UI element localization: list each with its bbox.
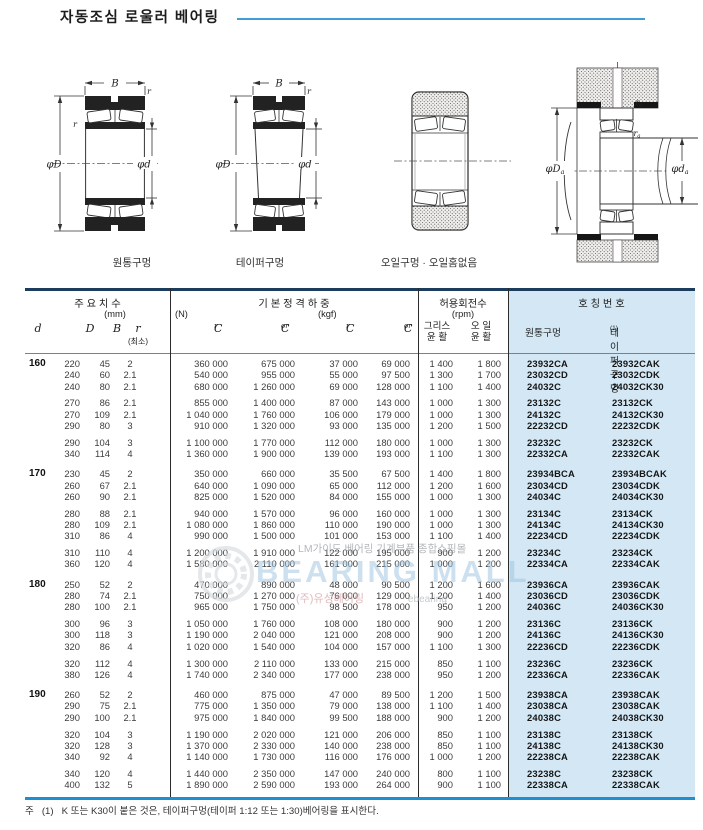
spacer: [150, 491, 170, 502]
cell-r: 2: [110, 358, 150, 369]
cell-cylindrical-number: 23236C: [508, 658, 611, 669]
cell-grease: 1 200: [418, 480, 453, 491]
cell-r: 3: [110, 618, 150, 629]
cell-D: 340: [55, 448, 80, 459]
cell-cr-n: 990 000: [170, 530, 228, 541]
cell-taper-number: 24134CK30: [611, 519, 695, 530]
cell-grease: 1 200: [418, 590, 453, 601]
divider: [170, 288, 171, 797]
cell-cylindrical-number: 22334CA: [508, 558, 611, 569]
cell-cr-n: 350 000: [170, 468, 228, 479]
cell-B: 120: [80, 768, 110, 779]
cell-taper-number: 22236CDK: [611, 641, 695, 652]
cell-cor-n: 1 760 000: [228, 409, 295, 420]
cell-cor-kgf: 97 500: [358, 369, 410, 380]
cell-cr-n: 1 050 000: [170, 618, 228, 629]
cell-cor-kgf: 208 000: [358, 629, 410, 640]
cell-D: 320: [55, 729, 80, 740]
cell-cor-kgf: 138 000: [358, 700, 410, 711]
spacer: [410, 700, 418, 711]
spacer: [501, 751, 508, 762]
cell-cr-kgf: 99 500: [295, 712, 358, 723]
table-row: 2901002.1975 0001 840 00099 500188 00090…: [25, 712, 695, 723]
cell-B: 100: [80, 601, 110, 612]
table-row: 29010431 100 0001 770 000112 000180 0001…: [25, 437, 695, 448]
cell-oil: 1 100: [453, 768, 501, 779]
cell-cr-kgf: 193 000: [295, 779, 358, 790]
cell-cr-kgf: 140 000: [295, 740, 358, 751]
svg-text:r: r: [73, 120, 78, 129]
cell-cor-kgf: 153 000: [358, 530, 410, 541]
cell-oil: 1 100: [453, 729, 501, 740]
cell-taper-number: 22238CAK: [611, 751, 695, 762]
cell-cylindrical-number: 22232CD: [508, 420, 611, 431]
spacer: [410, 420, 418, 431]
spacer: [150, 658, 170, 669]
cell-cor-n: 2 350 000: [228, 768, 295, 779]
cell-cylindrical-number: 22236CD: [508, 641, 611, 652]
svg-text:r: r: [147, 87, 152, 96]
cell-cylindrical-number: 23132C: [508, 397, 611, 408]
cell-B: 86: [80, 530, 110, 541]
cell-cr-kgf: 37 000: [295, 358, 358, 369]
cell-B: 104: [80, 729, 110, 740]
cell-D: 260: [55, 491, 80, 502]
spacer: [150, 381, 170, 392]
cell-cylindrical-number: 22332CA: [508, 448, 611, 459]
cell-cylindrical-number: 23232C: [508, 437, 611, 448]
cell-cor-kgf: 188 000: [358, 712, 410, 723]
cell-r: 2.1: [110, 480, 150, 491]
cell-oil: 1 300: [453, 641, 501, 652]
svg-text:r: r: [307, 87, 312, 96]
cell-taper-number: 22332CAK: [611, 448, 695, 459]
cell-taper-number: 23936CAK: [611, 579, 695, 590]
cell-oil: 1 300: [453, 508, 501, 519]
cell-cor-n: 2 590 000: [228, 779, 295, 790]
spacer: [410, 740, 418, 751]
spacer: [501, 658, 508, 669]
cell-grease: 1 200: [418, 689, 453, 700]
cell-cor-n: 1 570 000: [228, 508, 295, 519]
cell-D: 340: [55, 751, 80, 762]
cell-taper-number: 23036CDK: [611, 590, 695, 601]
cell-B: 132: [80, 779, 110, 790]
table-row: 280742.1750 0001 270 00076 000129 0001 2…: [25, 590, 695, 601]
cell-cr-kgf: 112 000: [295, 437, 358, 448]
cell-cylindrical-number: 23238C: [508, 768, 611, 779]
col-d: d: [29, 322, 47, 335]
svg-text:B: B: [110, 79, 118, 90]
cell-cr-n: 1 740 000: [170, 669, 228, 680]
spacer: [150, 729, 170, 740]
table-header: 주 요 치 수 (mm) 기 본 정 격 하 중 (N) (kgf) 허용회전수…: [25, 288, 695, 354]
cell-d: [25, 381, 55, 392]
cell-d: [25, 658, 55, 669]
cell-taper-number: 22232CDK: [611, 420, 695, 431]
spacer: [410, 590, 418, 601]
cell-taper-number: 23236CK: [611, 658, 695, 669]
table-row: 3208641 020 0001 540 000104 000157 0001 …: [25, 641, 695, 652]
cell-r: 3: [110, 437, 150, 448]
table-row: 260902.1825 0001 520 00084 000155 0001 0…: [25, 491, 695, 502]
spacer: [410, 448, 418, 459]
cell-cor-n: 2 340 000: [228, 669, 295, 680]
spacer: [410, 669, 418, 680]
spacer: [150, 420, 170, 431]
cell-r: 2.1: [110, 369, 150, 380]
cell-d: 180: [25, 579, 55, 590]
spacer: [410, 491, 418, 502]
footnote-text: K 또는 K30이 붙은 것은, 테이퍼구멍(테이퍼 1:12 또는 1:30)…: [62, 806, 379, 817]
spacer: [501, 547, 508, 558]
cell-oil: 1 800: [453, 468, 501, 479]
cell-cor-n: 1 910 000: [228, 547, 295, 558]
cell-B: 74: [80, 590, 110, 601]
spacer: [150, 547, 170, 558]
cell-cr-n: 540 000: [170, 369, 228, 380]
cell-cor-n: 1 730 000: [228, 751, 295, 762]
cell-B: 92: [80, 751, 110, 762]
cell-D: 280: [55, 590, 80, 601]
cell-grease: 900: [418, 629, 453, 640]
cell-cor-n: 1 860 000: [228, 519, 295, 530]
spacer: [410, 480, 418, 491]
cell-cr-kgf: 104 000: [295, 641, 358, 652]
page-title: 자동조심 로울러 베어링: [60, 6, 219, 27]
svg-text:φD: φD: [215, 160, 230, 171]
cell-D: 380: [55, 669, 80, 680]
cell-D: 320: [55, 641, 80, 652]
cell-B: 104: [80, 437, 110, 448]
spacer: [410, 547, 418, 558]
bearing-drawing-cylindrical-bore-icon: B φD φd r r: [40, 72, 165, 252]
cell-cr-kgf: 35 500: [295, 468, 358, 479]
cell-taper-number: 23132CK: [611, 397, 695, 408]
cell-d: 170: [25, 468, 55, 479]
cell-cor-kgf: 180 000: [358, 618, 410, 629]
spacer: [150, 409, 170, 420]
table-body: 160220452360 000675 00037 00069 0001 400…: [25, 354, 695, 797]
spacer: [501, 712, 508, 723]
spacer: [150, 480, 170, 491]
cell-cr-n: 825 000: [170, 491, 228, 502]
table-row: 280882.1940 0001 570 00096 000160 0001 0…: [25, 508, 695, 519]
cell-cor-kgf: 89 500: [358, 689, 410, 700]
cell-cor-n: 1 400 000: [228, 397, 295, 408]
cell-cor-n: 2 330 000: [228, 740, 295, 751]
table-row: 32012831 370 0002 330 000140 000238 0008…: [25, 740, 695, 751]
cell-r: 3: [110, 420, 150, 431]
cell-cr-kgf: 121 000: [295, 729, 358, 740]
cell-cr-n: 1 440 000: [170, 768, 228, 779]
spacer: [410, 779, 418, 790]
cell-D: 290: [55, 700, 80, 711]
cell-d: [25, 601, 55, 612]
footnote-number: (1): [42, 806, 54, 817]
spacer: [410, 519, 418, 530]
cell-cr-n: 1 360 000: [170, 448, 228, 459]
table-row: 290803910 0001 320 00093 000135 0001 200…: [25, 420, 695, 431]
spacer: [501, 468, 508, 479]
spacer: [501, 590, 508, 601]
cell-B: 128: [80, 740, 110, 751]
table-row: 240602.1540 000955 00055 00097 5001 3001…: [25, 369, 695, 380]
cell-cor-kgf: 69 000: [358, 358, 410, 369]
cell-oil: 1 400: [453, 590, 501, 601]
cell-cor-n: 1 520 000: [228, 491, 295, 502]
spacer: [150, 369, 170, 380]
table-row: 240802.1680 0001 260 00069 000128 0001 1…: [25, 381, 695, 392]
cell-grease: 850: [418, 729, 453, 740]
cell-cylindrical-number: 24138C: [508, 740, 611, 751]
cell-cylindrical-number: 23932CA: [508, 358, 611, 369]
cell-r: 3: [110, 740, 150, 751]
col-oil: 오 일윤 활: [463, 321, 499, 343]
cell-cor-n: 1 320 000: [228, 420, 295, 431]
cell-oil: 1 200: [453, 629, 501, 640]
cell-cor-kgf: 67 500: [358, 468, 410, 479]
cell-cor-n: 1 090 000: [228, 480, 295, 491]
cell-grease: 1 000: [418, 751, 453, 762]
cell-B: 52: [80, 579, 110, 590]
title-underline: [237, 18, 645, 20]
cell-cor-kgf: 129 000: [358, 590, 410, 601]
cell-taper-number: 23938CAK: [611, 689, 695, 700]
cell-oil: 1 300: [453, 491, 501, 502]
spacer: [410, 409, 418, 420]
cell-grease: 1 100: [418, 641, 453, 652]
spacer: [410, 381, 418, 392]
spacer: [501, 601, 508, 612]
cell-cylindrical-number: 23134C: [508, 508, 611, 519]
cell-oil: 1 700: [453, 369, 501, 380]
cell-B: 126: [80, 669, 110, 680]
spacer: [501, 729, 508, 740]
spacer: [410, 397, 418, 408]
svg-text:B: B: [274, 79, 282, 90]
spacer: [501, 397, 508, 408]
cell-grease: 1 000: [418, 508, 453, 519]
cell-r: 2.1: [110, 590, 150, 601]
cell-cr-kgf: 96 000: [295, 508, 358, 519]
cell-cor-kgf: 195 000: [358, 547, 410, 558]
cell-cylindrical-number: 23234C: [508, 547, 611, 558]
cell-cr-n: 640 000: [170, 480, 228, 491]
cell-B: 52: [80, 689, 110, 700]
cell-r: 4: [110, 768, 150, 779]
spacer: [410, 768, 418, 779]
cell-cor-n: 1 500 000: [228, 530, 295, 541]
cell-cr-kgf: 106 000: [295, 409, 358, 420]
cell-d: [25, 420, 55, 431]
cell-cor-kgf: 190 000: [358, 519, 410, 530]
cell-r: 4: [110, 669, 150, 680]
cell-d: [25, 779, 55, 790]
spacer: [150, 768, 170, 779]
cell-d: [25, 448, 55, 459]
cell-cylindrical-number: 23032CD: [508, 369, 611, 380]
cell-oil: 1 400: [453, 530, 501, 541]
cell-cr-n: 1 040 000: [170, 409, 228, 420]
cell-D: 310: [55, 547, 80, 558]
cell-grease: 1 100: [418, 448, 453, 459]
cell-cr-n: 1 190 000: [170, 629, 228, 640]
cell-cr-n: 1 100 000: [170, 437, 228, 448]
spacer: [501, 437, 508, 448]
cell-cr-kgf: 87 000: [295, 397, 358, 408]
spacer: [501, 641, 508, 652]
cell-B: 120: [80, 558, 110, 569]
cell-cr-kgf: 101 000: [295, 530, 358, 541]
cell-cor-n: 1 350 000: [228, 700, 295, 711]
table-row: 3409241 140 0001 730 000116 000176 0001 …: [25, 751, 695, 762]
cell-grease: 1 000: [418, 491, 453, 502]
cell-grease: 1 100: [418, 530, 453, 541]
cell-cor-kgf: 215 000: [358, 558, 410, 569]
cell-cor-n: 660 000: [228, 468, 295, 479]
cell-D: 280: [55, 519, 80, 530]
spacer: [150, 508, 170, 519]
cell-d: 190: [25, 689, 55, 700]
table-row: 31011041 200 0001 910 000122 000195 0009…: [25, 547, 695, 558]
spacer: [501, 381, 508, 392]
cell-r: 4: [110, 530, 150, 541]
spacer: [501, 409, 508, 420]
header-load: 기 본 정 격 하 중: [170, 295, 418, 310]
cell-d: [25, 629, 55, 640]
cell-oil: 1 100: [453, 779, 501, 790]
cell-cor-kgf: 238 000: [358, 669, 410, 680]
cell-cylindrical-number: 23934BCA: [508, 468, 611, 479]
cell-cor-kgf: 238 000: [358, 740, 410, 751]
cell-cor-kgf: 176 000: [358, 751, 410, 762]
cell-grease: 1 100: [418, 700, 453, 711]
cell-cor-kgf: 143 000: [358, 397, 410, 408]
cell-cor-n: 1 760 000: [228, 618, 295, 629]
table-row: 32010431 190 0002 020 000121 000206 0008…: [25, 729, 695, 740]
spacer: [501, 508, 508, 519]
cell-cor-kgf: 178 000: [358, 601, 410, 612]
cell-cr-kgf: 110 000: [295, 519, 358, 530]
caption-tapered-bore: 테이퍼구멍: [224, 255, 296, 270]
cell-taper-number: 23038CAK: [611, 700, 695, 711]
spacer: [150, 700, 170, 711]
cell-grease: 850: [418, 740, 453, 751]
spacer: [410, 658, 418, 669]
cell-cylindrical-number: 23138C: [508, 729, 611, 740]
table-row: 310864990 0001 500 000101 000153 0001 10…: [25, 530, 695, 541]
cell-oil: 1 200: [453, 558, 501, 569]
spacer: [150, 358, 170, 369]
spacer: [150, 579, 170, 590]
cell-cr-n: 1 080 000: [170, 519, 228, 530]
cell-cylindrical-number: 24132C: [508, 409, 611, 420]
cell-cylindrical-number: 22234CD: [508, 530, 611, 541]
table-row: 32011241 300 0002 110 000133 000215 0008…: [25, 658, 695, 669]
cell-D: 320: [55, 658, 80, 669]
spacer: [501, 558, 508, 569]
cell-taper-number: 23932CAK: [611, 358, 695, 369]
cell-cor-kgf: 90 500: [358, 579, 410, 590]
caption-oil-hole: 오일구멍 · 오일홈없음: [366, 255, 492, 270]
cell-cor-n: 2 110 000: [228, 558, 295, 569]
spacer: [150, 641, 170, 652]
header-load-n: (N): [175, 309, 188, 319]
cell-taper-number: 23136CK: [611, 618, 695, 629]
cell-d: 160: [25, 358, 55, 369]
cell-cor-n: 1 750 000: [228, 601, 295, 612]
cell-oil: 1 800: [453, 358, 501, 369]
cell-cr-kgf: 48 000: [295, 579, 358, 590]
cell-D: 280: [55, 601, 80, 612]
cell-d: [25, 618, 55, 629]
cell-d: [25, 519, 55, 530]
table-row: 180250522470 000890 00048 00090 5001 200…: [25, 579, 695, 590]
cell-r: 2: [110, 468, 150, 479]
cell-cr-n: 1 370 000: [170, 740, 228, 751]
cell-oil: 1 200: [453, 601, 501, 612]
cell-D: 300: [55, 618, 80, 629]
cell-r: 2.1: [110, 381, 150, 392]
cell-cr-kgf: 133 000: [295, 658, 358, 669]
cell-grease: 1 400: [418, 358, 453, 369]
cell-cr-kgf: 76 000: [295, 590, 358, 601]
cell-taper-number: 23238CK: [611, 768, 695, 779]
spacer: [150, 629, 170, 640]
bearing-drawing-tapered-bore-icon: B φD φd r: [213, 72, 328, 252]
footnote-mark: 주: [25, 806, 34, 817]
cell-oil: 1 200: [453, 669, 501, 680]
cell-cr-n: 910 000: [170, 420, 228, 431]
cell-cylindrical-number: 24036C: [508, 601, 611, 612]
spacer: [410, 641, 418, 652]
caption-cylindrical-bore: 원통구멍: [96, 255, 168, 270]
spacer: [150, 689, 170, 700]
spacer: [501, 480, 508, 491]
table-row: 34011441 360 0001 900 000139 000193 0001…: [25, 448, 695, 459]
table-row: 40013251 890 0002 590 000193 000264 0009…: [25, 779, 695, 790]
spacer: [501, 369, 508, 380]
cell-D: 360: [55, 558, 80, 569]
cell-d: [25, 768, 55, 779]
col-cylindrical-number: 원통구멍: [525, 325, 561, 339]
cell-B: 109: [80, 519, 110, 530]
header-speed: 허용회전수: [418, 295, 508, 310]
spacer: [410, 712, 418, 723]
col-B: B: [107, 322, 127, 335]
header-part-number: 호 칭 번 호: [508, 295, 695, 310]
cell-B: 90: [80, 491, 110, 502]
cell-cylindrical-number: 22338CA: [508, 779, 611, 790]
cell-D: 270: [55, 397, 80, 408]
cell-cylindrical-number: 24136C: [508, 629, 611, 640]
spacer: [410, 629, 418, 640]
cell-cylindrical-number: 24032C: [508, 381, 611, 392]
spacer: [410, 579, 418, 590]
cell-cor-kgf: 128 000: [358, 381, 410, 392]
cell-cor-n: 2 020 000: [228, 729, 295, 740]
cell-cr-kgf: 93 000: [295, 420, 358, 431]
spacer: [150, 740, 170, 751]
cell-cor-kgf: 193 000: [358, 448, 410, 459]
spacer: [410, 437, 418, 448]
cell-oil: 1 200: [453, 751, 501, 762]
spacer: [150, 558, 170, 569]
spacer: [501, 700, 508, 711]
spec-table: 주 요 치 수 (mm) 기 본 정 격 하 중 (N) (kgf) 허용회전수…: [25, 288, 695, 800]
header-dimensions-unit: (mm): [55, 309, 175, 319]
